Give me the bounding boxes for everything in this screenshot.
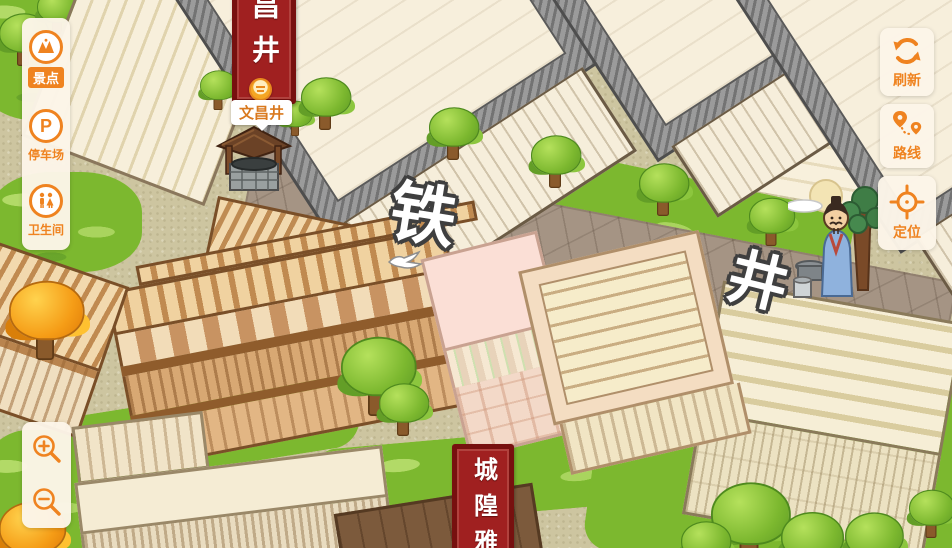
route-button[interactable]: 路线 — [880, 104, 934, 168]
locate-icon — [889, 184, 925, 220]
toolbar-item-parking[interactable]: P 停车场 — [28, 109, 64, 163]
refresh-icon — [890, 34, 924, 68]
bottom-banner[interactable]: 城隍雅 — [452, 444, 514, 548]
parking-letter: P — [40, 117, 52, 135]
zoom-in-button[interactable] — [30, 432, 64, 466]
route-icon — [890, 109, 924, 141]
route-label: 路线 — [893, 143, 921, 163]
map-canvas[interactable]: 铁 井 文昌井 城隍雅 文昌井 景点 P 停车场 — [0, 0, 952, 548]
toolbar-label: 卫生间 — [28, 221, 64, 238]
autumn-tree — [23, 543, 39, 548]
zoom-controls — [22, 422, 71, 528]
tree — [319, 108, 331, 130]
tree — [926, 518, 937, 538]
tree — [657, 194, 669, 216]
tree — [397, 414, 409, 436]
poi-label[interactable]: 文昌井 — [231, 100, 292, 125]
refresh-label: 刷新 — [893, 70, 921, 90]
street-name-char: 铁 — [385, 177, 461, 253]
parking-icon: P — [29, 109, 63, 143]
scenic-spot-icon — [29, 30, 63, 64]
locate-label: 定位 — [893, 222, 921, 242]
left-toolbar: 景点 P 停车场 卫生间 — [22, 18, 70, 250]
locate-button[interactable]: 定位 — [878, 176, 936, 250]
tree — [766, 226, 777, 246]
toolbar-item-scenic[interactable]: 景点 — [28, 30, 64, 88]
tree — [214, 94, 223, 110]
autumn-tree — [36, 328, 54, 360]
tree — [447, 138, 459, 160]
toolbar-label: 停车场 — [28, 146, 64, 163]
zoom-out-button[interactable] — [30, 485, 64, 519]
tree — [740, 532, 759, 548]
tree — [549, 166, 561, 188]
toolbar-label: 景点 — [28, 67, 64, 88]
refresh-button[interactable]: 刷新 — [880, 28, 934, 96]
bottom-banner-text: 城隍雅 — [466, 449, 501, 548]
courtyard-inner — [539, 250, 714, 405]
restroom-icon — [29, 184, 63, 218]
toolbar-item-restroom[interactable]: 卫生间 — [28, 184, 64, 238]
poi-marker-icon[interactable] — [249, 78, 272, 101]
villager-illustration — [788, 168, 880, 300]
well-illustration — [212, 122, 296, 194]
